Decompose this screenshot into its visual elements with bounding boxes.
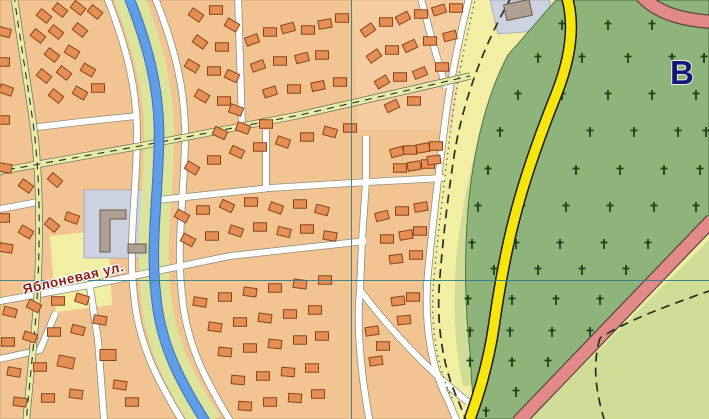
building — [377, 342, 390, 351]
building — [254, 223, 267, 232]
building — [323, 231, 337, 242]
building — [219, 293, 232, 302]
building — [407, 293, 420, 302]
building — [218, 97, 231, 106]
building — [274, 57, 287, 66]
building — [0, 214, 10, 223]
building — [430, 142, 443, 151]
building — [0, 243, 13, 254]
building — [100, 350, 116, 361]
building — [294, 336, 307, 345]
building — [302, 26, 315, 35]
building — [231, 375, 245, 385]
building — [344, 124, 357, 133]
building — [294, 200, 307, 209]
building — [381, 235, 394, 244]
building — [318, 19, 332, 30]
school-annex-building — [128, 244, 146, 253]
building — [288, 85, 301, 94]
building — [208, 322, 222, 332]
building — [414, 227, 427, 236]
building — [369, 356, 383, 366]
building — [394, 164, 407, 173]
building — [284, 310, 297, 319]
building — [414, 202, 428, 213]
building — [258, 313, 272, 323]
building — [301, 133, 314, 142]
building — [306, 364, 319, 373]
building — [208, 67, 221, 76]
area-letter: В — [670, 54, 694, 91]
building — [244, 344, 257, 353]
building — [427, 155, 441, 165]
building — [316, 51, 329, 60]
building — [0, 58, 10, 67]
building — [396, 207, 409, 216]
building — [238, 401, 252, 410]
building — [126, 398, 139, 407]
building — [399, 230, 413, 241]
map-viewport[interactable]: Яблоневая ул. В — [0, 0, 709, 419]
building — [197, 206, 210, 215]
building — [404, 146, 417, 155]
building — [245, 198, 258, 207]
building — [380, 18, 393, 27]
building — [92, 84, 105, 93]
building — [216, 43, 229, 52]
building — [69, 389, 83, 399]
building — [257, 372, 270, 381]
building — [218, 347, 232, 357]
building — [436, 63, 449, 72]
building — [281, 367, 295, 377]
building — [208, 156, 221, 165]
building — [193, 297, 207, 308]
building — [93, 315, 107, 326]
building — [416, 143, 430, 154]
building — [415, 10, 428, 19]
building — [394, 73, 407, 82]
building — [7, 367, 21, 378]
building — [309, 306, 322, 315]
building — [113, 380, 127, 390]
building — [264, 398, 277, 407]
building — [0, 163, 12, 174]
building — [243, 287, 257, 297]
building — [312, 390, 325, 399]
building — [206, 232, 219, 241]
building — [264, 28, 277, 37]
building — [389, 254, 403, 264]
building — [316, 332, 329, 341]
building — [397, 315, 411, 325]
building — [450, 4, 463, 13]
building — [42, 394, 55, 403]
building — [301, 225, 314, 234]
map-canvas[interactable]: Яблоневая ул. В — [0, 0, 709, 419]
building — [288, 393, 302, 402]
building — [234, 318, 247, 327]
building — [13, 397, 27, 407]
building — [254, 143, 267, 152]
building — [210, 6, 223, 15]
building — [2, 338, 15, 347]
building — [269, 284, 282, 293]
building — [52, 297, 65, 306]
building — [424, 37, 437, 46]
building — [260, 120, 273, 129]
building — [334, 78, 347, 87]
building — [34, 363, 47, 372]
building — [336, 14, 349, 23]
building — [0, 116, 10, 125]
building — [410, 251, 423, 260]
building — [386, 46, 399, 55]
building — [48, 328, 61, 337]
building — [408, 97, 421, 106]
building — [391, 296, 405, 306]
building — [407, 161, 421, 172]
building — [365, 326, 379, 336]
building — [268, 339, 282, 349]
